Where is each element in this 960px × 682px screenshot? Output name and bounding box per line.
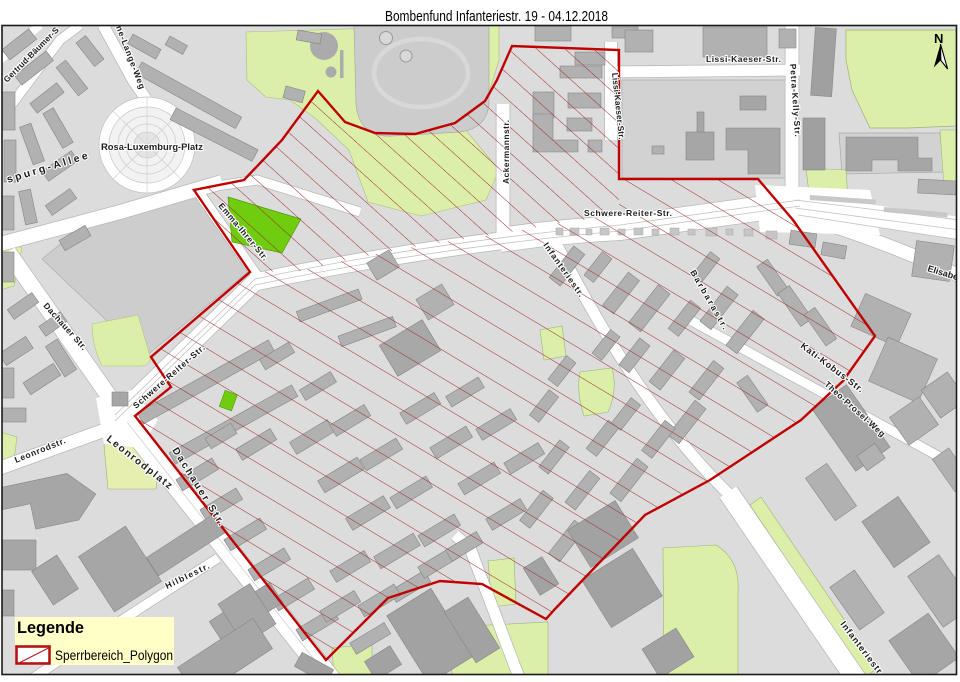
- svg-text:Schwere-Reiter-Str.: Schwere-Reiter-Str.: [584, 208, 672, 218]
- svg-text:Legende: Legende: [17, 619, 84, 637]
- svg-text:Sperrbereich_Polygon: Sperrbereich_Polygon: [55, 648, 173, 663]
- svg-text:Ackermannstr.: Ackermannstr.: [501, 120, 511, 184]
- svg-text:N: N: [934, 31, 943, 46]
- svg-text:Rosa-Luxemburg-Platz: Rosa-Luxemburg-Platz: [101, 142, 203, 153]
- svg-text:Bombenfund Infanteriestr. 19 -: Bombenfund Infanteriestr. 19 - 04.12.201…: [385, 9, 608, 25]
- svg-text:Lissi-Kaeser-Str.: Lissi-Kaeser-Str.: [706, 54, 781, 64]
